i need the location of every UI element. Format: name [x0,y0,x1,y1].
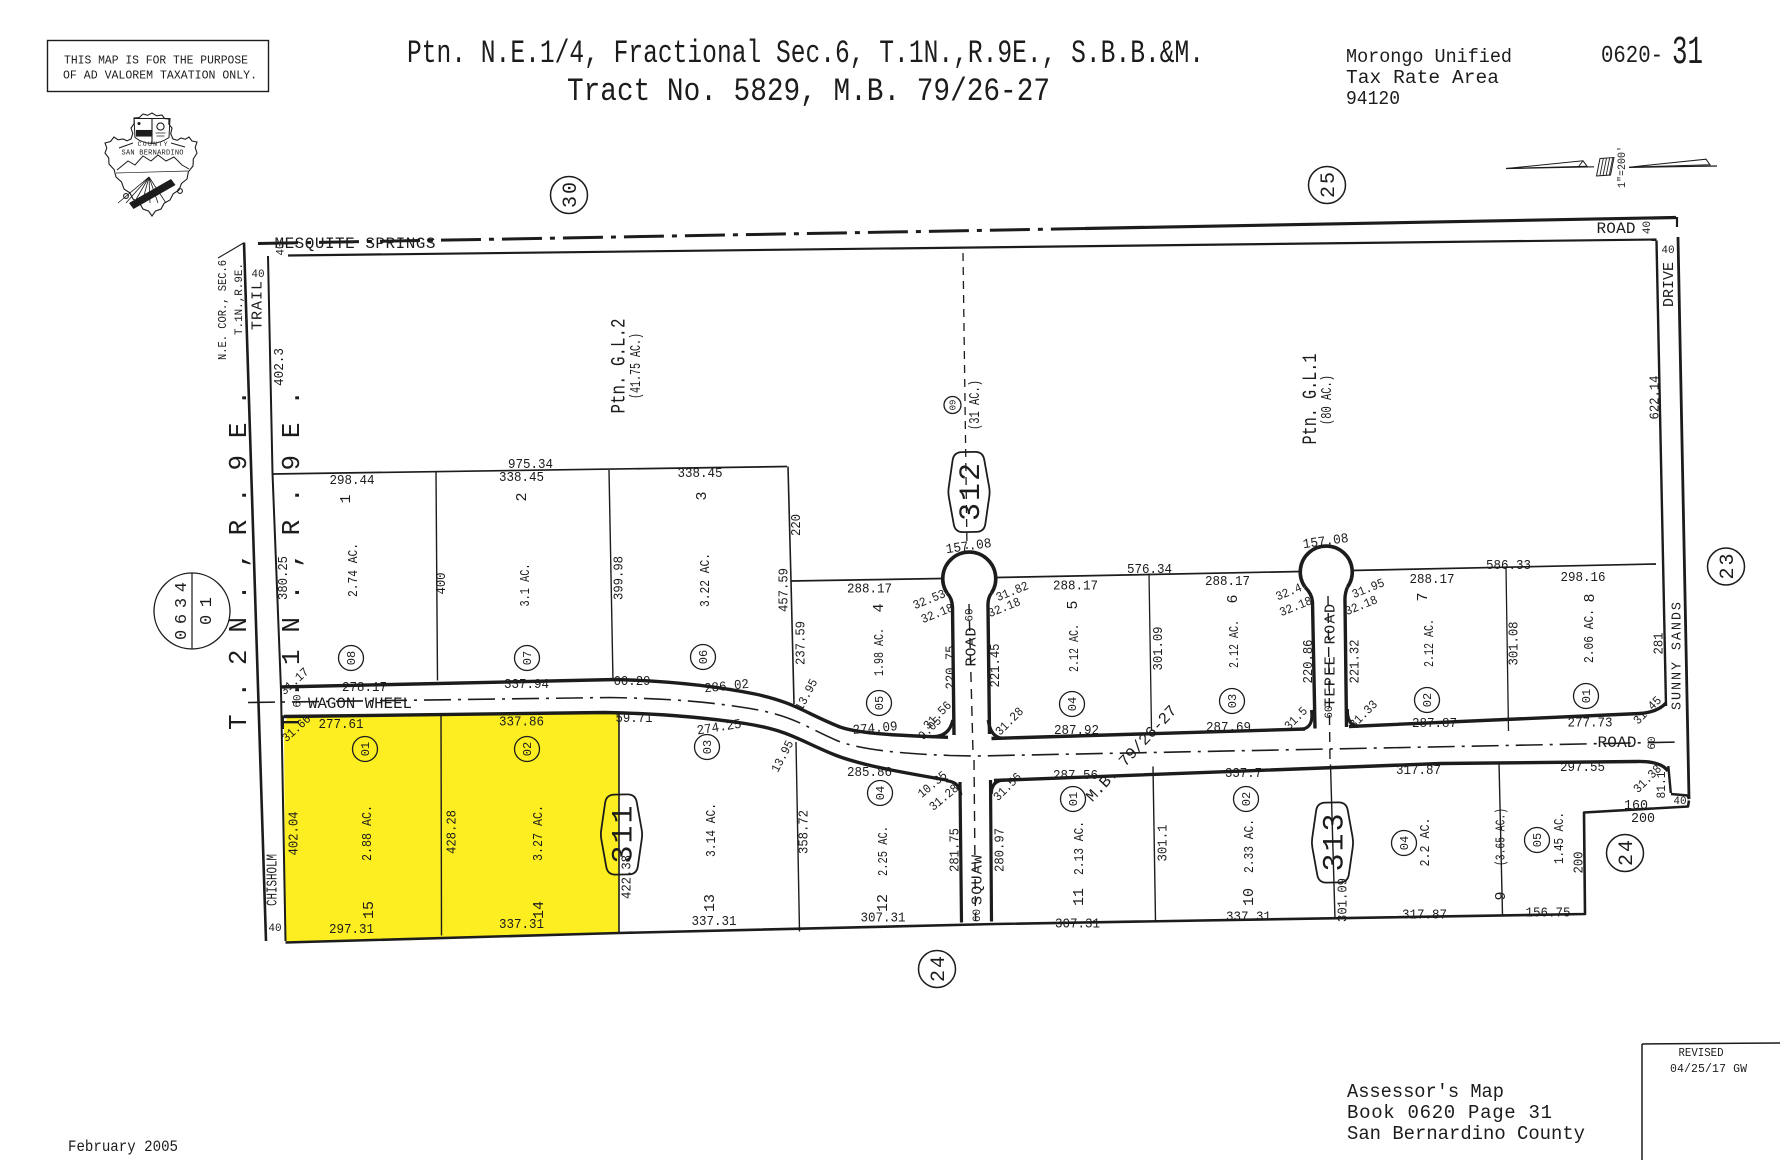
svg-text:337.7: 337.7 [1225,767,1262,782]
svg-text:6: 6 [1225,594,1242,603]
svg-text:12: 12 [875,894,892,912]
svg-text:285.86: 285.86 [847,766,892,781]
svg-text:60: 60 [1324,705,1336,718]
svg-text:11: 11 [1071,888,1088,906]
svg-text:02: 02 [521,742,535,756]
svg-text:(3.65 AC.): (3.65 AC.) [1493,808,1509,866]
svg-text:200: 200 [1631,812,1655,827]
svg-text:220.86: 220.86 [1302,640,1317,684]
svg-text:06: 06 [697,650,711,664]
svg-text:40: 40 [1661,245,1674,257]
svg-text:220: 220 [790,514,805,536]
svg-text:337.31: 337.31 [692,915,737,930]
svg-text:337.31: 337.31 [499,918,544,933]
svg-text:04: 04 [1066,697,1080,711]
svg-text:3.1 AC.: 3.1 AC. [518,564,534,607]
svg-text:COUNTY: COUNTY [138,141,168,148]
svg-text:31: 31 [1672,31,1703,76]
svg-text:13: 13 [702,894,719,912]
svg-text:221.45: 221.45 [989,644,1004,688]
svg-text:03: 03 [1226,694,1240,708]
svg-text:(31 AC.): (31 AC.) [967,380,984,430]
svg-text:REVISED: REVISED [1679,1047,1724,1060]
svg-text:297.55: 297.55 [1560,761,1605,776]
svg-text:Tax Rate Area: Tax Rate Area [1346,67,1499,89]
svg-text:25: 25 [1318,172,1341,198]
svg-text:457.59: 457.59 [778,568,793,612]
svg-text:288.17: 288.17 [1053,580,1098,595]
svg-text:08: 08 [345,651,359,665]
svg-text:428.28: 428.28 [446,810,461,854]
svg-text:281.75: 281.75 [949,828,964,872]
svg-text:288.17: 288.17 [1205,575,1250,590]
svg-text:317.87: 317.87 [1402,909,1447,924]
svg-text:422.38: 422.38 [621,855,636,899]
svg-text:337.31: 337.31 [1226,911,1271,926]
svg-text:2: 2 [514,492,531,501]
svg-text:2.88 AC.: 2.88 AC. [360,805,376,861]
svg-text:3: 3 [694,491,711,500]
svg-text:1: 1 [338,494,355,503]
svg-text:280.97: 280.97 [994,828,1009,872]
svg-text:3.27 AC.: 3.27 AC. [531,805,547,861]
svg-text:337.94: 337.94 [504,678,549,693]
svg-text:04/25/17 GW: 04/25/17 GW [1670,1063,1747,1076]
svg-text:200: 200 [1573,852,1588,874]
svg-text:60: 60 [1647,736,1659,749]
svg-text:60: 60 [972,909,984,922]
svg-text:1.98 AC.: 1.98 AC. [872,628,888,676]
svg-text:40: 40 [1673,796,1686,808]
svg-text:5: 5 [1065,600,1082,609]
svg-text:3.22 AC.: 3.22 AC. [698,553,714,607]
svg-text:278.17: 278.17 [342,681,387,696]
svg-text:40: 40 [251,269,264,281]
svg-text:288.17: 288.17 [1410,573,1455,588]
svg-text:(41.75 AC.): (41.75 AC.) [628,333,645,399]
svg-text:220.75: 220.75 [945,646,960,690]
svg-text:0620-: 0620- [1601,43,1663,70]
svg-text:February 2005: February 2005 [68,1138,178,1156]
svg-text:317.87: 317.87 [1396,764,1441,779]
svg-text:312: 312 [955,463,989,521]
svg-text:313: 313 [1319,814,1353,872]
svg-text:05: 05 [1531,833,1545,847]
svg-text:622.14: 622.14 [1649,376,1664,420]
svg-text:237.59: 237.59 [795,621,810,665]
svg-text:SAN BERNARDINO: SAN BERNARDINO [122,150,184,158]
svg-text:Ptn. N.E.1/4, Fractional Sec.6: Ptn. N.E.1/4, Fractional Sec.6, T.1N.,R.… [407,35,1204,72]
svg-text:San Bernardino County: San Bernardino County [1347,1123,1585,1145]
svg-text:Book 0620 Page 31: Book 0620 Page 31 [1347,1102,1552,1124]
svg-text:40: 40 [268,923,281,935]
svg-text:298.16: 298.16 [1561,571,1606,586]
svg-text:1"=200': 1"=200' [1617,146,1629,188]
svg-text:60.29: 60.29 [614,675,651,690]
svg-text:15: 15 [361,901,378,919]
svg-text:94120: 94120 [1346,88,1400,110]
svg-text:9: 9 [1493,891,1510,900]
svg-text:OF AD VALOREM TAXATION ONLY.: OF AD VALOREM TAXATION ONLY. [63,69,257,83]
svg-text:DRIVE: DRIVE [1661,262,1678,307]
svg-text:30: 30 [560,182,583,208]
svg-text:2.12 AC.: 2.12 AC. [1422,619,1438,667]
svg-text:311: 311 [608,806,642,864]
svg-text:277.61: 277.61 [319,718,364,733]
svg-text:40: 40 [1642,221,1654,234]
svg-text:287.56: 287.56 [1053,769,1098,784]
svg-text:09: 09 [949,400,959,411]
svg-text:N.E. COR., SEC.6: N.E. COR., SEC.6 [216,260,230,360]
svg-text:8: 8 [1582,593,1599,602]
svg-text:04: 04 [1398,836,1412,850]
svg-text:Morongo Unified: Morongo Unified [1346,46,1512,68]
svg-text:ROAD: ROAD [964,628,981,667]
svg-text:288.17: 288.17 [847,583,892,598]
svg-text:358.72: 358.72 [798,810,813,854]
svg-text:TEPEE ROAD: TEPEE ROAD [1323,604,1340,707]
svg-text:2.12 AC.: 2.12 AC. [1067,624,1083,672]
svg-text:307.31: 307.31 [1055,918,1100,933]
svg-text:399.98: 399.98 [613,556,628,600]
svg-text:01: 01 [1067,792,1081,806]
svg-text:04: 04 [874,786,888,800]
svg-text:01: 01 [1580,689,1594,703]
svg-text:02: 02 [1240,792,1254,806]
svg-text:297.31: 297.31 [329,923,374,938]
svg-text:(80 AC.): (80 AC.) [1319,375,1336,425]
svg-text:402.3: 402.3 [273,348,288,386]
svg-text:4: 4 [871,603,888,612]
svg-text:281: 281 [1653,633,1668,655]
svg-text:586.33: 586.33 [1486,559,1531,574]
svg-text:24: 24 [1616,840,1639,866]
svg-text:156.75: 156.75 [1526,907,1571,922]
svg-text:23: 23 [1717,554,1740,580]
svg-text:CHISHOLM: CHISHOLM [265,854,282,906]
svg-text:60: 60 [964,608,976,621]
svg-text:2.13 AC.: 2.13 AC. [1072,821,1088,875]
svg-text:7: 7 [1415,592,1432,601]
svg-text:2.33 AC.: 2.33 AC. [1242,819,1258,873]
svg-text:01: 01 [359,742,373,756]
svg-text:338.45: 338.45 [499,471,544,486]
svg-text:59.71: 59.71 [616,712,653,727]
svg-text:SQUAW: SQUAW [970,855,987,905]
svg-text:Assessor's Map: Assessor's Map [1347,1081,1504,1103]
svg-text:Tract No. 5829, M.B. 79/26-27: Tract No. 5829, M.B. 79/26-27 [567,73,1050,110]
svg-text:402.04: 402.04 [288,812,303,856]
svg-text:ROAD: ROAD [1598,734,1637,752]
svg-text:1.45 AC.: 1.45 AC. [1552,812,1568,864]
svg-text:02: 02 [1421,693,1435,707]
svg-text:2.25 AC.: 2.25 AC. [876,826,892,876]
svg-text:14: 14 [531,901,548,919]
svg-text:05: 05 [873,696,887,710]
svg-text:301.09: 301.09 [1337,878,1352,922]
svg-text:SUNNY SANDS: SUNNY SANDS [1671,602,1686,710]
svg-text:298.44: 298.44 [330,474,375,489]
svg-text:301.09: 301.09 [1152,627,1167,671]
svg-text:576.34: 576.34 [1127,563,1172,578]
svg-text:338.45: 338.45 [678,467,723,482]
svg-text:2.74 AC.: 2.74 AC. [346,543,362,597]
svg-text:400: 400 [435,573,450,595]
svg-text:221.32: 221.32 [1349,640,1364,684]
svg-text:2.2 AC.: 2.2 AC. [1418,818,1434,867]
svg-text:THIS MAP IS FOR THE PURPOSE: THIS MAP IS FOR THE PURPOSE [64,54,248,68]
svg-text:2.12 AC.: 2.12 AC. [1227,620,1243,668]
svg-text:10: 10 [1241,888,1258,906]
svg-text:T.1N.,R.9E.: T.1N.,R.9E. [234,263,246,335]
svg-text:380.25: 380.25 [277,556,292,600]
svg-text:24: 24 [928,956,951,982]
svg-text:MESQUITE SPRINGS: MESQUITE SPRINGS [275,235,436,253]
svg-text:03: 03 [701,740,715,754]
svg-text:07: 07 [521,651,535,665]
svg-text:WAGON WHEEL: WAGON WHEEL [308,695,412,713]
svg-text:287.69: 287.69 [1206,721,1251,736]
svg-text:40: 40 [275,242,287,255]
svg-text:301.1: 301.1 [1157,825,1172,862]
svg-text:3.14 AC.: 3.14 AC. [704,803,720,857]
svg-text:307.31: 307.31 [861,912,906,927]
svg-text:2.06 AC.: 2.06 AC. [1582,609,1598,663]
svg-text:301.08: 301.08 [1508,622,1523,666]
svg-text:287.92: 287.92 [1054,724,1099,739]
svg-text:TRAIL: TRAIL [250,281,267,330]
svg-text:337.86: 337.86 [499,716,544,731]
svg-text:ROAD: ROAD [1597,220,1636,238]
svg-text:277.73: 277.73 [1568,717,1613,732]
svg-text:81.1: 81.1 [1655,772,1669,799]
svg-text:287.87: 287.87 [1412,717,1457,732]
